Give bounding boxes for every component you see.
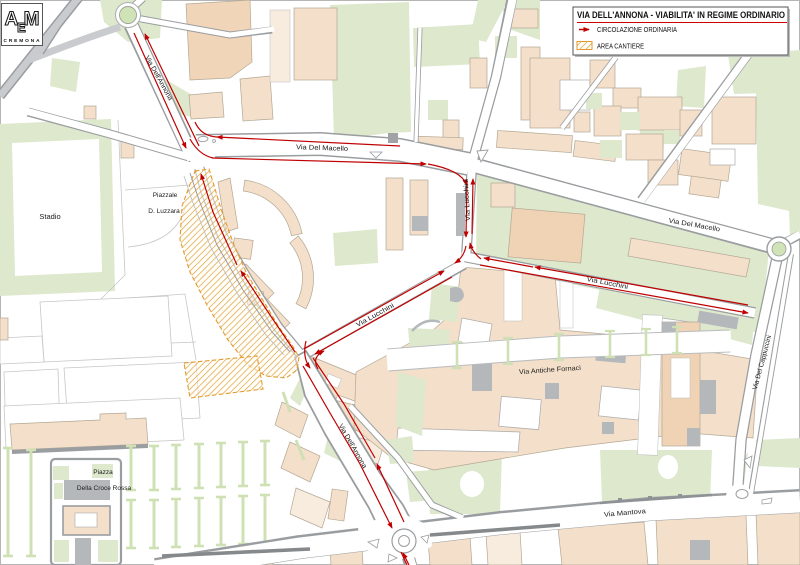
svg-text:CIRCOLAZIONE ORDINARIA: CIRCOLAZIONE ORDINARIA — [597, 27, 677, 34]
svg-text:CREMONA: CREMONA — [3, 38, 41, 44]
svg-text:M: M — [24, 9, 40, 30]
svg-text:Piazzale: Piazzale — [153, 192, 178, 199]
svg-text:VIA DELL'ANNONA - VIABILITA' I: VIA DELL'ANNONA - VIABILITA' IN REGIME O… — [577, 10, 785, 20]
svg-text:D. Luzzara: D. Luzzara — [148, 208, 180, 215]
svg-text:Stadio: Stadio — [39, 212, 60, 221]
svg-text:E: E — [17, 20, 26, 35]
svg-text:Piazza: Piazza — [93, 469, 113, 476]
svg-text:Della Croce Rossa: Della Croce Rossa — [77, 485, 132, 492]
svg-text:AREA CANTIERE: AREA CANTIERE — [597, 44, 644, 51]
